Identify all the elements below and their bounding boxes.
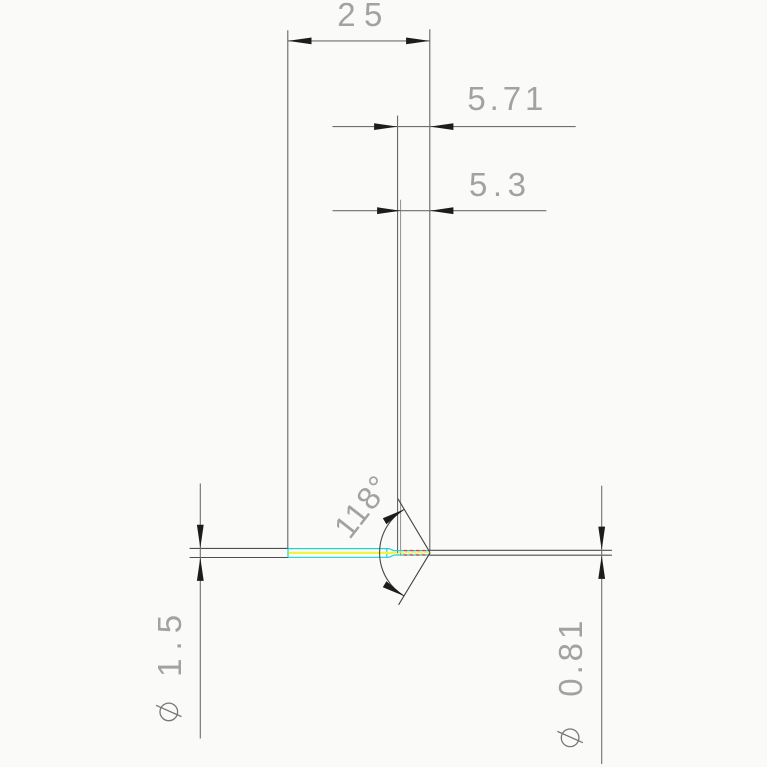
svg-text:5.3: 5.3: [469, 166, 526, 203]
svg-text:1.5: 1.5: [151, 615, 188, 677]
svg-text:0.81: 0.81: [552, 621, 589, 697]
svg-text:5.71: 5.71: [467, 80, 543, 117]
